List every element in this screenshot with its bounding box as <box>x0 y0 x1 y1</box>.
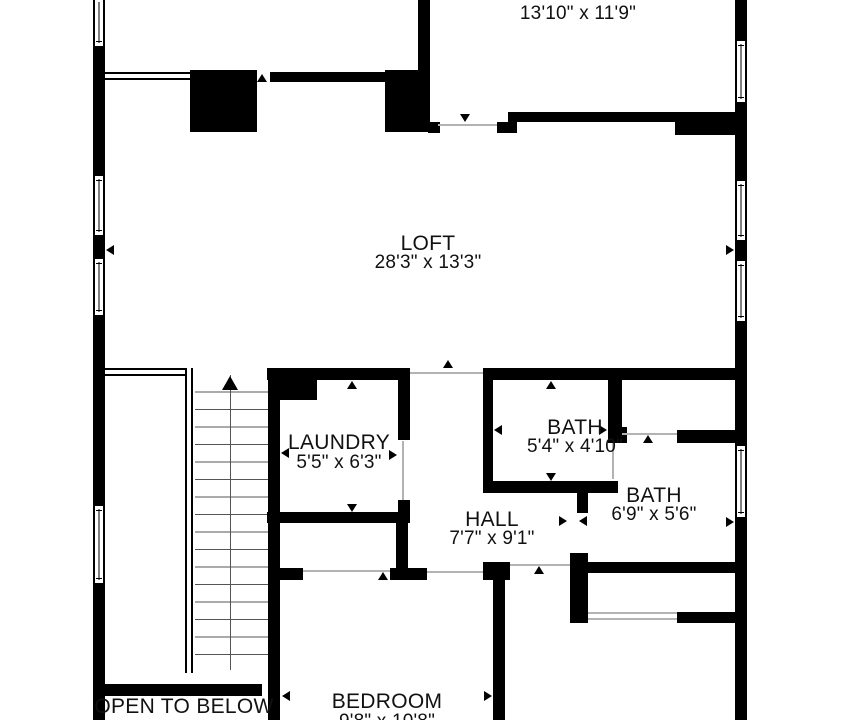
dimension-arrow <box>282 691 290 701</box>
wall-bath-small-bottom <box>483 481 618 493</box>
window <box>736 40 746 103</box>
wall-laundry-bottom <box>267 512 410 523</box>
dimension-arrow <box>484 691 492 701</box>
dimension-arrow <box>643 435 653 443</box>
dimension-arrow <box>460 114 470 122</box>
door-bedroom <box>427 571 483 573</box>
dimension-arrow <box>257 74 267 82</box>
dimension-arrow <box>546 381 556 389</box>
floorplan-canvas: PRIMARY BEDROOM 13'10" x 11'9" LOFT 28'3… <box>0 0 841 720</box>
window <box>94 0 104 47</box>
dimension-arrow <box>579 516 587 526</box>
stair-shaft-wall-top <box>105 368 193 376</box>
dimension-arrow <box>389 450 397 460</box>
wall-closet2-bottom-right <box>677 612 737 623</box>
dimension-arrow <box>106 245 114 255</box>
wall-primary-bedroom-bottom <box>508 112 735 122</box>
stair-shaft-wall-right <box>185 368 193 673</box>
wall-primary-bedroom-left <box>418 0 430 132</box>
door-bedroom-closet <box>303 570 390 572</box>
window <box>94 258 104 316</box>
door-laundry <box>402 441 404 500</box>
room-label-laundry: LAUNDRY <box>288 431 390 454</box>
wall-primary-bedroom-door-stub-right <box>497 122 517 133</box>
wall-stairs-right <box>268 368 280 720</box>
dimension-arrow <box>546 473 556 481</box>
wall-bedroom-top-mid <box>390 568 427 580</box>
opening-loft-hall <box>410 372 483 374</box>
room-dims-bedroom: 9'8" x 10'8" <box>339 712 435 720</box>
wall-closet2-top <box>580 562 737 573</box>
dimension-arrow <box>347 504 357 512</box>
room-dims-primary-bedroom: 13'10" x 11'9" <box>520 4 636 25</box>
door-primary-bedroom <box>438 124 497 126</box>
dimension-arrow <box>559 516 567 526</box>
room-dims-hall: 7'7" x 9'1" <box>449 529 534 550</box>
wall-exterior-left <box>93 0 105 720</box>
room-label-open-to-below: OPEN TO BELOW <box>94 695 273 718</box>
dimension-arrow <box>494 425 502 435</box>
stairs-up-arrow <box>222 376 238 390</box>
window <box>736 180 746 241</box>
dimension-arrow <box>443 360 453 368</box>
wall-bath-small-left <box>483 368 493 493</box>
room-dims-bath-large: 6'9" x 5'6" <box>611 505 696 526</box>
room-label-bedroom: BEDROOM <box>332 690 443 713</box>
dimension-arrow <box>726 245 734 255</box>
window <box>736 445 746 518</box>
wall-laundry-corner-block <box>278 380 317 400</box>
wall-mass-top-left <box>190 70 257 132</box>
wall-laundry-top <box>267 368 403 380</box>
dimension-arrow <box>534 566 544 574</box>
sliding-door-closet2-a <box>588 612 677 614</box>
wall-bath-large-divider <box>677 430 735 443</box>
wall-laundry-right-upper <box>398 368 410 440</box>
window <box>94 505 104 584</box>
window <box>736 260 746 322</box>
window <box>94 175 104 236</box>
wall-primary-bedroom-bottom-block <box>675 122 735 135</box>
room-dims-loft: 28'3" x 13'3" <box>375 253 482 274</box>
railing-top <box>105 72 190 80</box>
room-dims-bath-small: 5'4" x 4'10" <box>527 437 623 458</box>
stair-center-line <box>230 375 231 670</box>
dimension-arrow <box>347 381 357 389</box>
dimension-arrow <box>378 572 388 580</box>
wall-bath-large-entry-stub <box>577 492 588 513</box>
room-dims-laundry: 5'5" x 6'3" <box>296 453 381 474</box>
wall-top-middle <box>270 72 385 82</box>
staircase <box>195 375 268 670</box>
wall-bedroom-right <box>493 578 505 720</box>
sliding-door-closet2-b <box>588 618 677 620</box>
dimension-arrow <box>726 517 734 527</box>
wall-bedroom-top-left <box>278 568 303 580</box>
